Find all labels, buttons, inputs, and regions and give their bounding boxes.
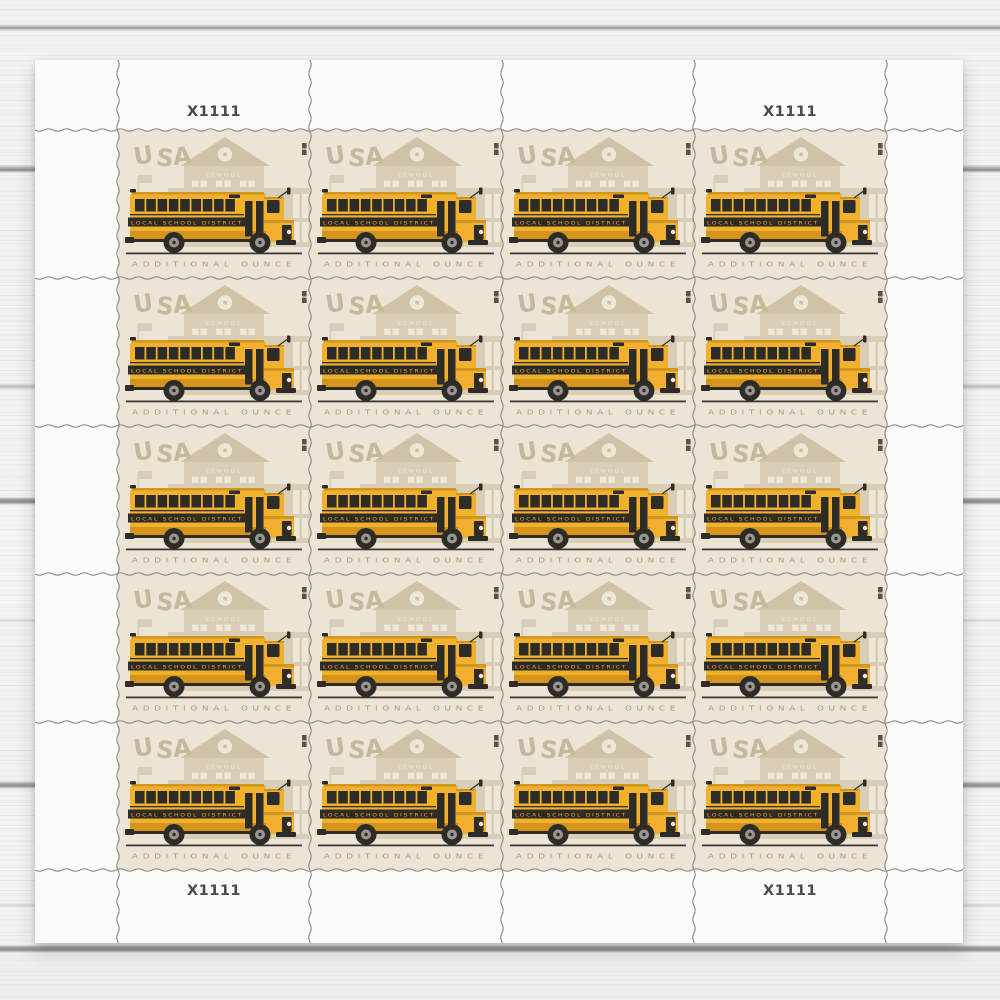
school-bus-stamp-art — [694, 722, 886, 870]
stamp — [502, 130, 694, 278]
school-bus-stamp-art — [694, 278, 886, 426]
stamp — [310, 426, 502, 574]
stamp — [118, 278, 310, 426]
school-bus-stamp-art — [502, 278, 694, 426]
school-bus-stamp-art — [502, 722, 694, 870]
stamp — [694, 130, 886, 278]
school-bus-stamp-art — [118, 130, 310, 278]
school-bus-stamp-art — [694, 574, 886, 722]
stamp — [118, 130, 310, 278]
stamp — [310, 278, 502, 426]
stamp — [118, 574, 310, 722]
stamp — [502, 426, 694, 574]
school-bus-stamp-art — [502, 426, 694, 574]
plate-number-bottom-right: X1111 — [735, 883, 845, 899]
school-bus-stamp-art — [694, 426, 886, 574]
school-bus-stamp-art — [502, 130, 694, 278]
stamp — [694, 722, 886, 870]
stamp — [310, 722, 502, 870]
stamp — [694, 278, 886, 426]
stamp — [502, 722, 694, 870]
stamp-sheet: X1111 X1111 X1111 X1111 — [35, 60, 963, 943]
school-bus-stamp-art — [310, 574, 502, 722]
stamp — [502, 278, 694, 426]
stamp — [694, 574, 886, 722]
stamp — [502, 574, 694, 722]
wood-table-background: { "scene": { "subject": "Sheet of 20 sch… — [0, 0, 1000, 1000]
school-bus-stamp-art — [310, 722, 502, 870]
stamp-grid — [118, 130, 886, 870]
stamp — [310, 574, 502, 722]
stamp — [310, 130, 502, 278]
plate-number-top-right: X1111 — [735, 104, 845, 120]
stamp — [694, 426, 886, 574]
school-bus-stamp-art — [310, 278, 502, 426]
school-bus-stamp-art — [118, 278, 310, 426]
stamp — [118, 426, 310, 574]
school-bus-stamp-art — [502, 574, 694, 722]
school-bus-stamp-art — [118, 574, 310, 722]
school-bus-stamp-art — [118, 722, 310, 870]
plate-number-bottom-left: X1111 — [159, 883, 269, 899]
school-bus-stamp-art — [310, 130, 502, 278]
school-bus-stamp-art — [118, 426, 310, 574]
school-bus-stamp-art — [694, 130, 886, 278]
plate-number-top-left: X1111 — [159, 104, 269, 120]
school-bus-stamp-art — [310, 426, 502, 574]
stamp — [118, 722, 310, 870]
